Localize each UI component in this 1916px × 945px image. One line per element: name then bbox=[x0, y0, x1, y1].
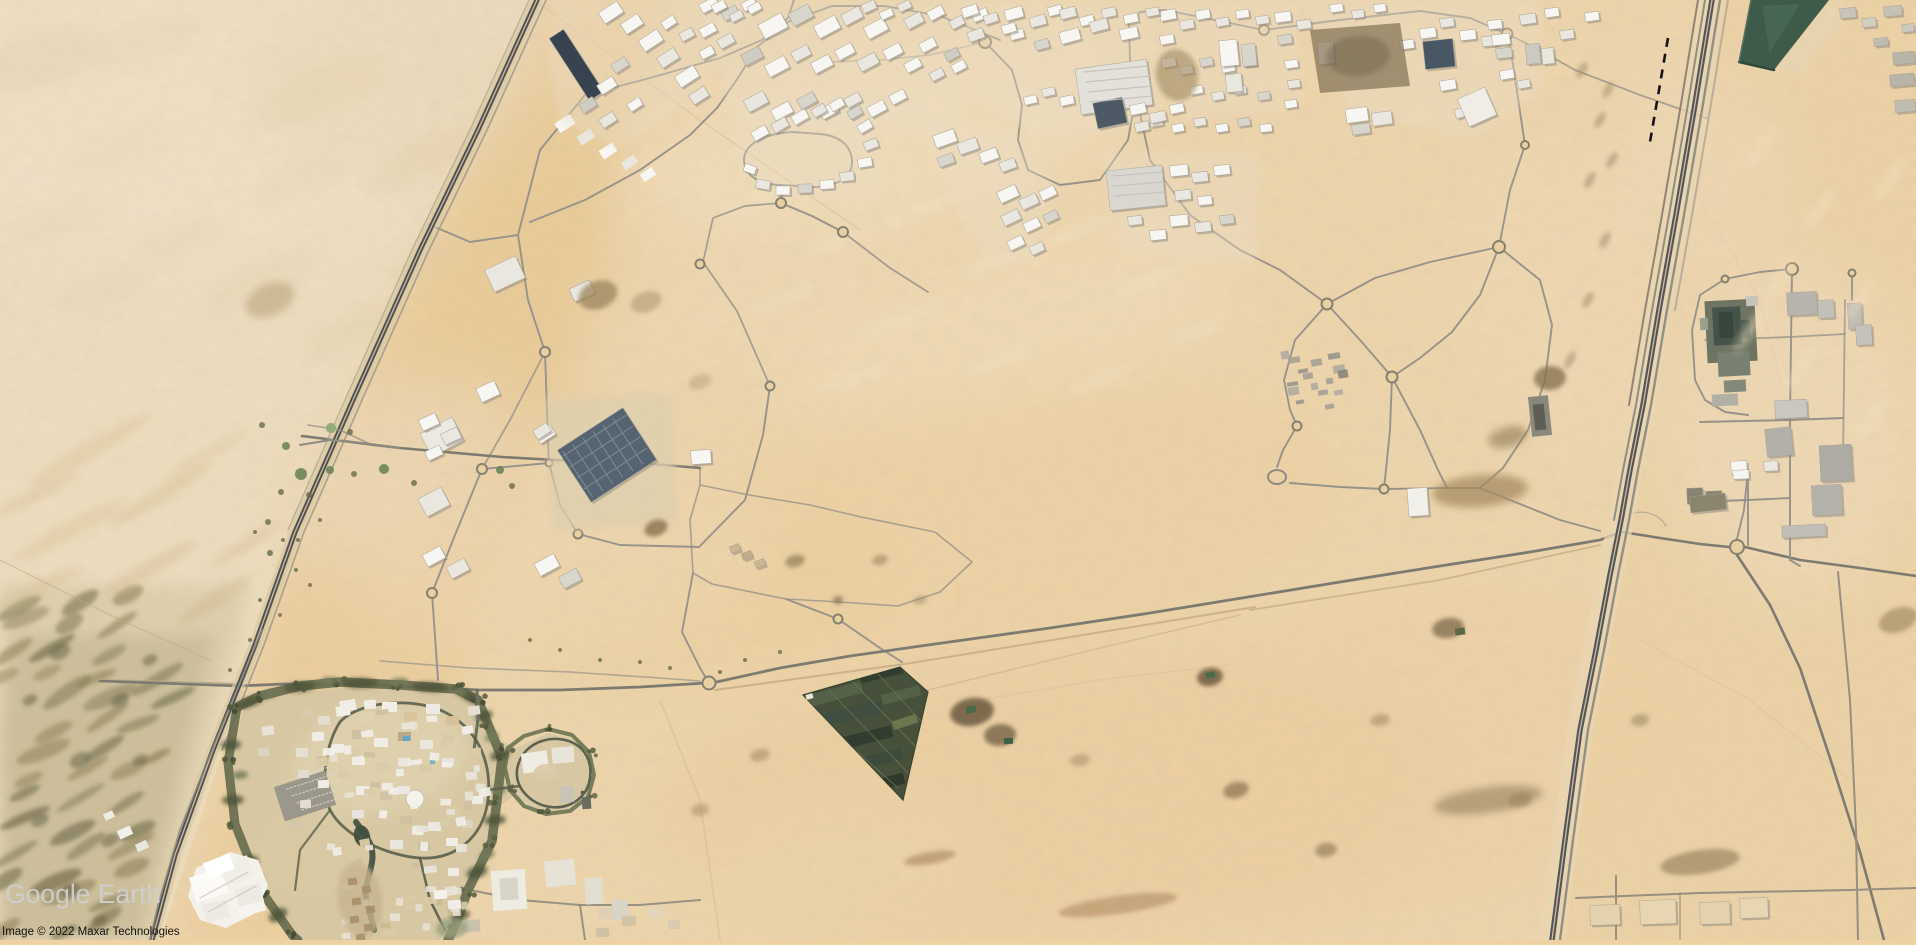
svg-text:Google Earth: Google Earth bbox=[5, 879, 161, 909]
svg-text:Image © 2022 Maxar Technologie: Image © 2022 Maxar Technologies bbox=[2, 926, 180, 938]
